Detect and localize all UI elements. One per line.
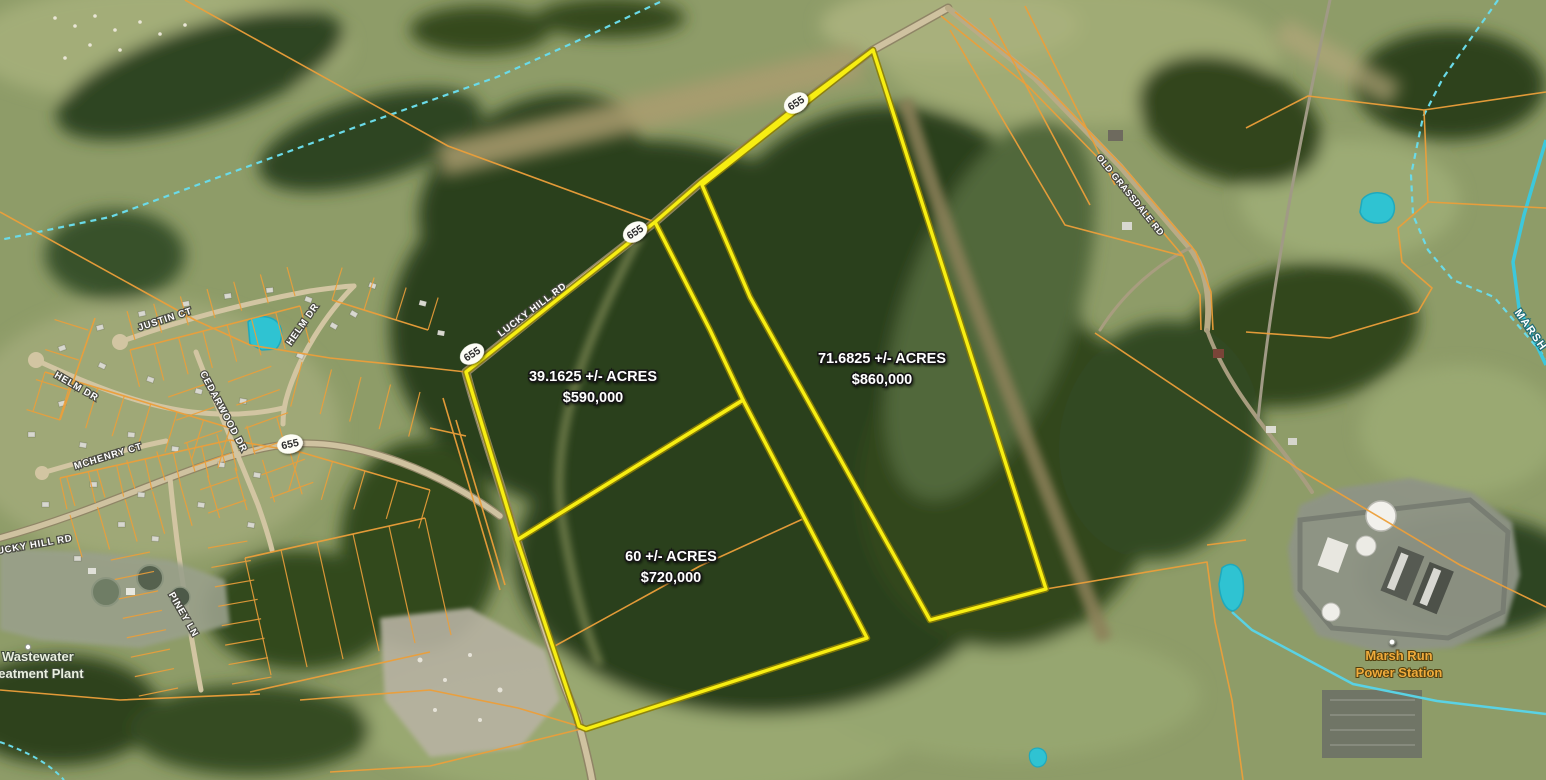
pond-northeast bbox=[1360, 193, 1394, 223]
svg-text:Treatment Plant: Treatment Plant bbox=[0, 666, 84, 681]
svg-text:39.1625 +/- ACRES: 39.1625 +/- ACRES bbox=[529, 369, 657, 385]
storage-tank-large bbox=[1366, 501, 1396, 531]
storage-tank-medium bbox=[1356, 536, 1376, 556]
svg-text:60 +/- ACRES: 60 +/- ACRES bbox=[625, 549, 717, 565]
helm-dr-culdesac bbox=[28, 352, 44, 368]
svg-text:71.6825 +/- ACRES: 71.6825 +/- ACRES bbox=[818, 351, 946, 367]
svg-text:$720,000: $720,000 bbox=[641, 570, 701, 586]
mchenry-ct-culdesac bbox=[35, 466, 49, 480]
svg-text:Marsh Run: Marsh Run bbox=[1365, 648, 1432, 663]
svg-text:Wastewater: Wastewater bbox=[2, 649, 74, 664]
pond-small-bottom bbox=[1029, 748, 1046, 767]
poi-wastewater-treatment-plant: Wastewater Treatment Plant bbox=[0, 644, 84, 681]
treatment-tank-1 bbox=[137, 565, 163, 591]
storage-tank-small bbox=[1322, 603, 1340, 621]
svg-text:$860,000: $860,000 bbox=[852, 372, 912, 388]
poi-dot bbox=[1389, 639, 1395, 645]
svg-text:$590,000: $590,000 bbox=[563, 390, 623, 406]
svg-text:Power Station: Power Station bbox=[1356, 665, 1443, 680]
justin-ct-culdesac bbox=[112, 334, 128, 350]
treatment-tank-2 bbox=[92, 578, 120, 606]
map-canvas[interactable]: JUSTIN CT HELM DR HELM DR CEDARWOOD DR M… bbox=[0, 0, 1546, 780]
satellite-map: JUSTIN CT HELM DR HELM DR CEDARWOOD DR M… bbox=[0, 0, 1546, 780]
